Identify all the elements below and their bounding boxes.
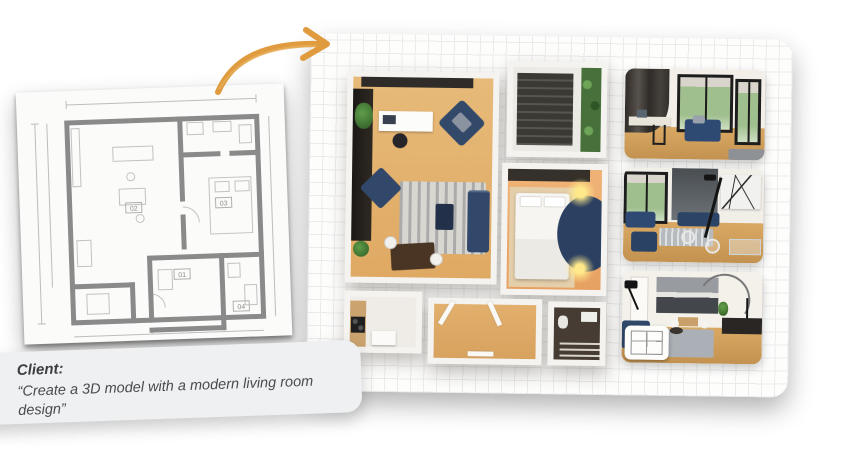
hallway-3d (427, 298, 542, 366)
balcony-3d (506, 61, 607, 158)
glass-table (729, 239, 761, 255)
dining-chair-3d (385, 237, 396, 248)
navy-sofa-3d (467, 190, 490, 252)
bedroom-3d (500, 163, 608, 296)
render-thumbnail-living-room (623, 167, 764, 263)
door-leaf (487, 301, 502, 327)
potted-plant (718, 302, 728, 316)
sink-3d (581, 312, 597, 322)
room-label-hall: 01 (178, 272, 186, 279)
blueprint-drawing: 02 03 01 04 (16, 83, 293, 344)
pillow (520, 196, 542, 207)
dining-chair-3d (431, 254, 442, 265)
floor-plan-3d (343, 59, 613, 371)
pillow (693, 115, 705, 123)
desk-3d (379, 111, 433, 132)
render-thumbnail-living-kitchen (621, 270, 762, 364)
blueprint-sheet: 02 03 01 04 (16, 83, 293, 344)
wire-chair (681, 230, 695, 244)
grid-paper-board (306, 33, 793, 398)
plant-icon (355, 103, 373, 129)
navy-ottoman (631, 231, 657, 251)
navy-sofa (625, 211, 655, 227)
coffee-table-3d (435, 204, 453, 230)
dog (670, 327, 683, 334)
lamp-head (624, 280, 637, 288)
walls (67, 116, 264, 333)
laptop-icon (383, 115, 396, 124)
mini-floor-plan-inset (624, 325, 668, 360)
room-label-living: 02 (130, 206, 138, 213)
balcony-deck (516, 73, 573, 146)
rug (728, 149, 764, 161)
kitchen-island-3d (372, 331, 396, 345)
wire-chair (705, 239, 720, 254)
room-label-bedroom: 03 (220, 200, 228, 207)
plant-icon (353, 241, 369, 257)
tv-console (722, 318, 762, 335)
window (734, 79, 761, 145)
toilet-3d (558, 315, 568, 328)
curtain-strip (361, 77, 473, 89)
door-leaf (438, 300, 456, 325)
pillow (544, 196, 566, 207)
room-label-bath: 04 (237, 304, 245, 311)
dining-table (678, 317, 698, 326)
chair (652, 125, 665, 145)
dining-table-3d (390, 242, 435, 270)
abstract-art (721, 175, 761, 210)
desk-chair-3d (392, 133, 407, 148)
bathroom-3d (547, 301, 606, 366)
lamp-head (704, 175, 716, 181)
bath-mat-3d (560, 339, 600, 358)
dining-chair (700, 319, 709, 328)
navy-sofa (677, 212, 719, 227)
cushion (451, 112, 472, 133)
navy-armchair-3d (438, 99, 486, 147)
render-thumbnail-workspace (624, 68, 765, 160)
door-mat (468, 351, 494, 356)
balcony-plants (580, 68, 601, 152)
bedside-lamp-glow (565, 254, 595, 284)
laptop-icon (637, 110, 647, 118)
living-room-3d (345, 71, 500, 285)
client-note-card: Client: “Create a 3D model with a modern… (0, 340, 363, 426)
stove-3d (351, 317, 365, 333)
